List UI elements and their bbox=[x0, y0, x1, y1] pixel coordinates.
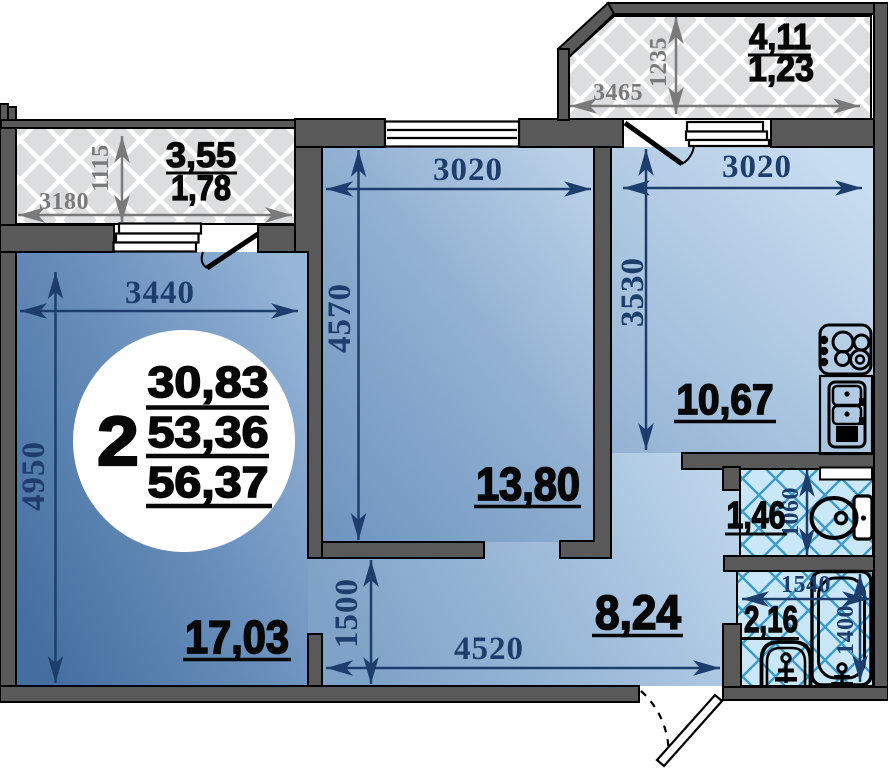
svg-text:4950: 4950 bbox=[16, 441, 52, 511]
svg-text:3465: 3465 bbox=[593, 80, 643, 106]
svg-text:17,03: 17,03 bbox=[185, 611, 289, 663]
svg-text:1,46: 1,46 bbox=[727, 495, 786, 537]
svg-text:4570: 4570 bbox=[322, 283, 358, 353]
svg-text:1115: 1115 bbox=[88, 144, 114, 191]
svg-text:2: 2 bbox=[97, 402, 139, 480]
svg-text:1540: 1540 bbox=[781, 572, 831, 598]
svg-text:13,80: 13,80 bbox=[476, 458, 580, 510]
svg-text:3440: 3440 bbox=[125, 275, 195, 311]
svg-text:3020: 3020 bbox=[722, 149, 792, 185]
svg-text:3020: 3020 bbox=[433, 152, 503, 188]
svg-text:1,23: 1,23 bbox=[748, 48, 814, 89]
svg-text:3180: 3180 bbox=[39, 189, 89, 215]
svg-text:1400: 1400 bbox=[833, 605, 859, 655]
svg-text:8,24: 8,24 bbox=[595, 587, 681, 640]
svg-text:30,83: 30,83 bbox=[148, 358, 269, 407]
svg-text:10,67: 10,67 bbox=[677, 376, 774, 424]
svg-text:1500: 1500 bbox=[329, 578, 365, 648]
svg-text:1235: 1235 bbox=[646, 37, 672, 87]
svg-text:1,78: 1,78 bbox=[171, 169, 231, 208]
svg-text:53,36: 53,36 bbox=[148, 408, 269, 457]
svg-text:4520: 4520 bbox=[454, 631, 524, 667]
svg-text:2,16: 2,16 bbox=[744, 599, 798, 640]
svg-text:3530: 3530 bbox=[615, 257, 651, 327]
svg-text:56,37: 56,37 bbox=[148, 458, 269, 507]
